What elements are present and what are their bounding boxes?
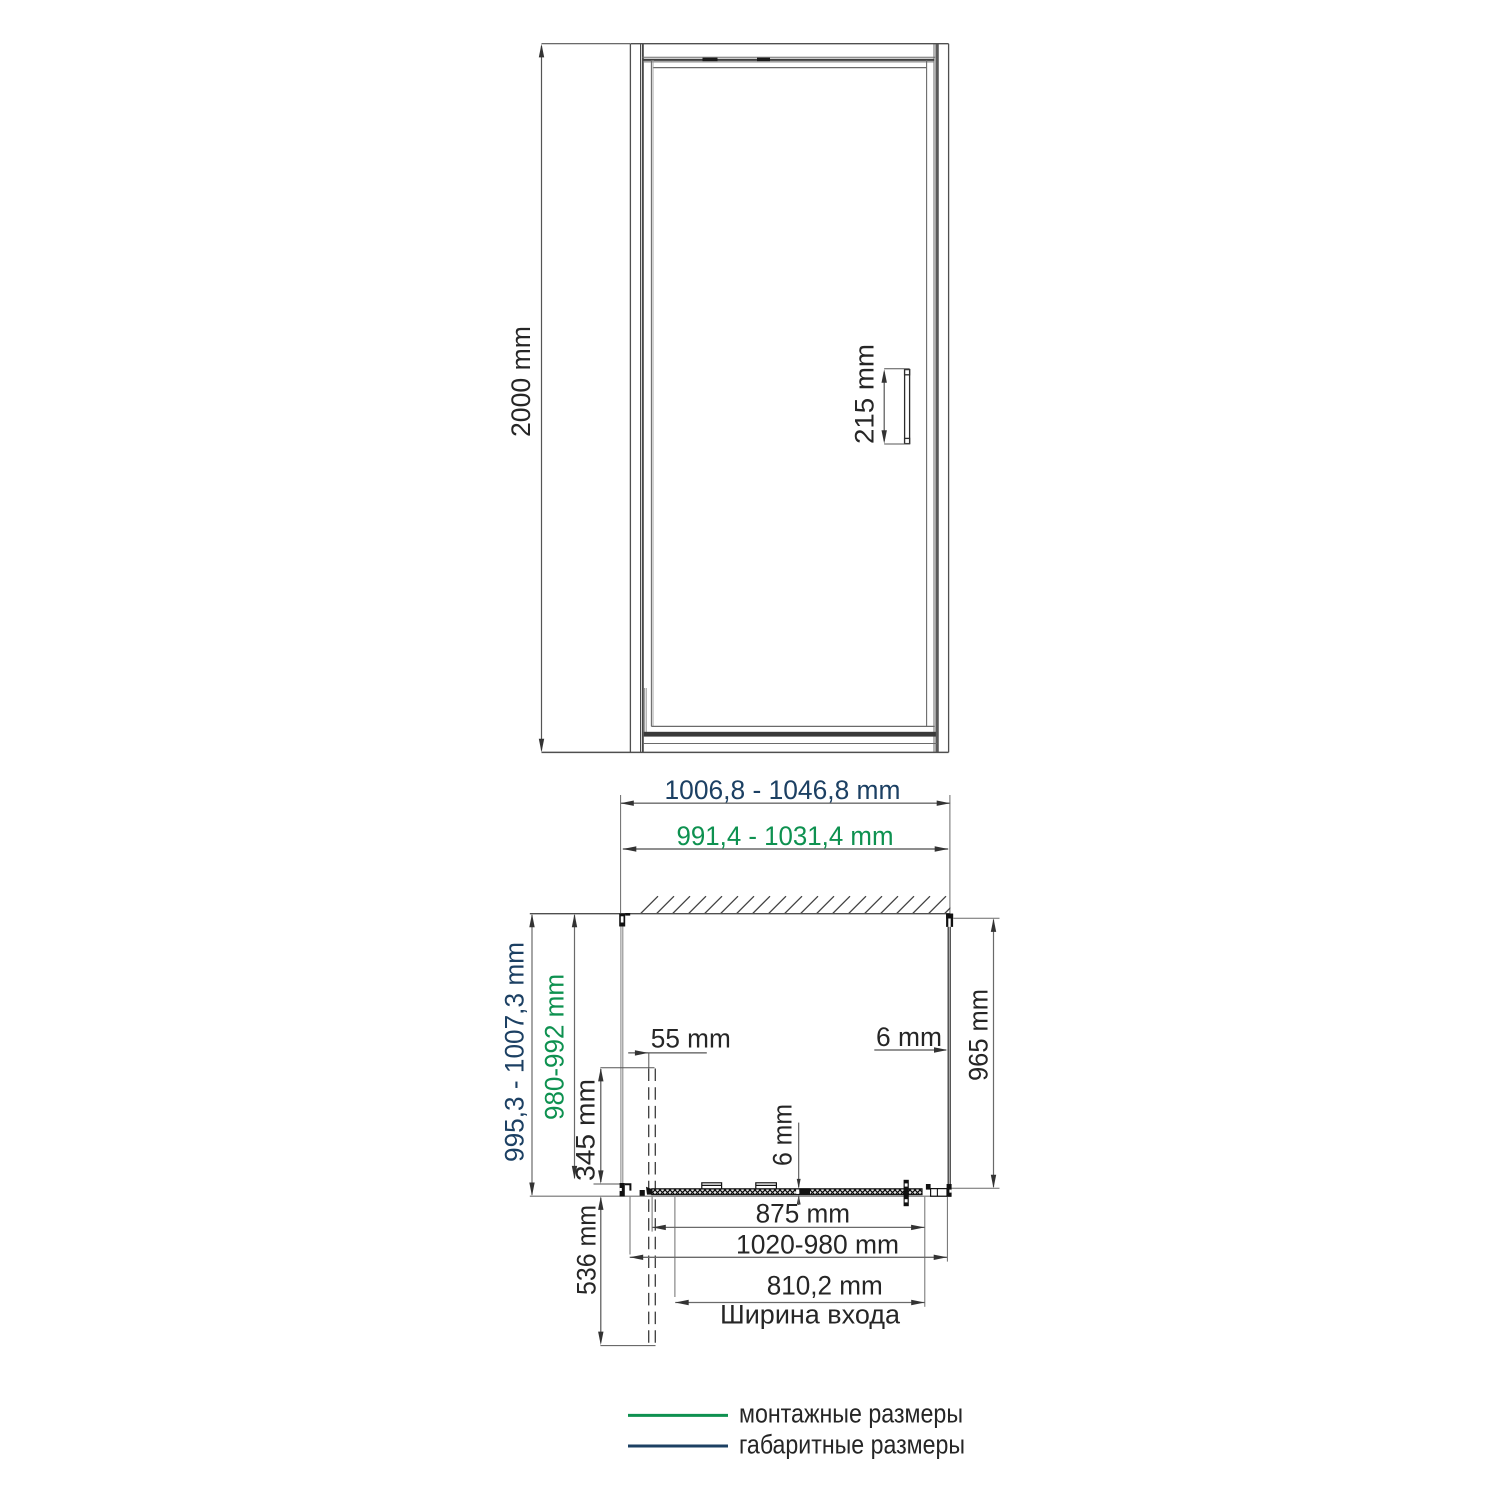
svg-text:875 mm: 875 mm — [756, 1199, 851, 1229]
svg-text:215 mm: 215 mm — [850, 344, 880, 444]
svg-text:965 mm: 965 mm — [964, 989, 994, 1081]
svg-text:габаритные размеры: габаритные размеры — [739, 1429, 965, 1459]
svg-text:1020-980 mm: 1020-980 mm — [736, 1229, 899, 1259]
svg-text:монтажные размеры: монтажные размеры — [739, 1398, 963, 1428]
svg-text:Ширина входа: Ширина входа — [720, 1299, 901, 1329]
svg-text:6 mm: 6 mm — [876, 1022, 942, 1052]
svg-text:991,4 - 1031,4 mm: 991,4 - 1031,4 mm — [677, 821, 894, 851]
svg-text:55 mm: 55 mm — [651, 1024, 731, 1054]
svg-text:345 mm: 345 mm — [571, 1079, 601, 1181]
svg-text:810,2 mm: 810,2 mm — [767, 1270, 883, 1300]
svg-text:995,3 - 1007,3 mm: 995,3 - 1007,3 mm — [500, 942, 530, 1162]
svg-text:536 mm: 536 mm — [572, 1205, 602, 1295]
svg-text:1006,8 - 1046,8 mm: 1006,8 - 1046,8 mm — [665, 775, 901, 805]
svg-text:6 mm: 6 mm — [768, 1104, 798, 1166]
svg-text:980-992 mm: 980-992 mm — [540, 974, 570, 1120]
svg-text:2000 mm: 2000 mm — [506, 326, 536, 437]
